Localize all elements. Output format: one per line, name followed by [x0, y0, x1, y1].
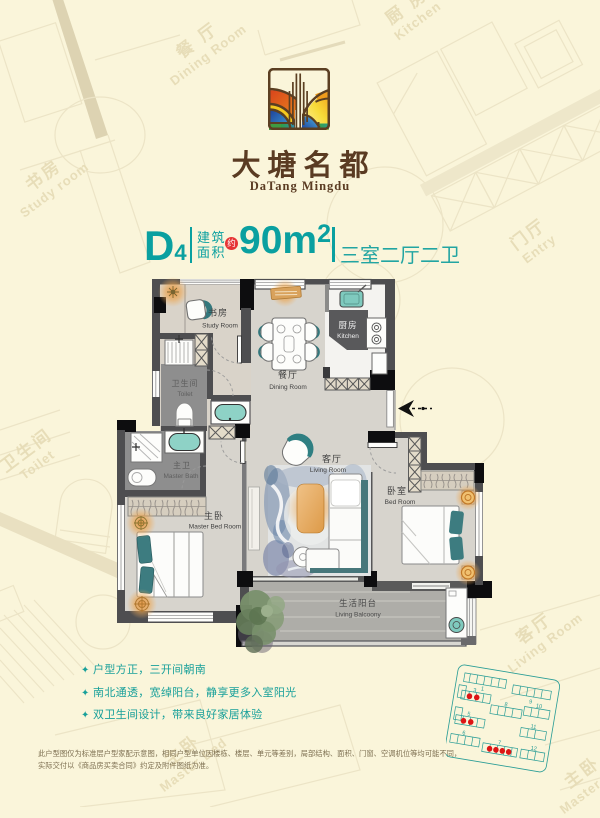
svg-text:书房: 书房 — [208, 307, 228, 318]
svg-text:Toilet: Toilet — [177, 391, 192, 398]
svg-text:3: 3 — [473, 688, 477, 695]
svg-text:Master Bath: Master Bath — [163, 473, 198, 480]
svg-text:Kitchen: Kitchen — [337, 333, 359, 340]
svg-text:Dining Room: Dining Room — [269, 384, 307, 391]
svg-text:厨房: 厨房 — [338, 320, 357, 330]
svg-text:Study Room: Study Room — [202, 323, 238, 330]
svg-text:10: 10 — [535, 703, 542, 710]
svg-text:9: 9 — [529, 699, 533, 706]
svg-text:Living Balcoony: Living Balcoony — [335, 612, 381, 619]
svg-text:11: 11 — [530, 724, 537, 731]
svg-text:Living Room: Living Room — [310, 467, 346, 474]
svg-text:卫生间: 卫生间 — [172, 378, 199, 388]
svg-text:主卫: 主卫 — [173, 460, 191, 470]
svg-text:1: 1 — [480, 686, 484, 693]
svg-text:客厅: 客厅 — [322, 453, 342, 464]
svg-text:Master Bed Room: Master Bed Room — [189, 524, 241, 531]
svg-text:12: 12 — [530, 746, 537, 753]
svg-text:卧室: 卧室 — [387, 485, 407, 496]
svg-text:餐厅: 餐厅 — [278, 369, 298, 380]
svg-text:Bed Room: Bed Room — [385, 499, 416, 506]
svg-text:主卧: 主卧 — [204, 510, 224, 521]
svg-text:生活阳台: 生活阳台 — [339, 598, 377, 608]
